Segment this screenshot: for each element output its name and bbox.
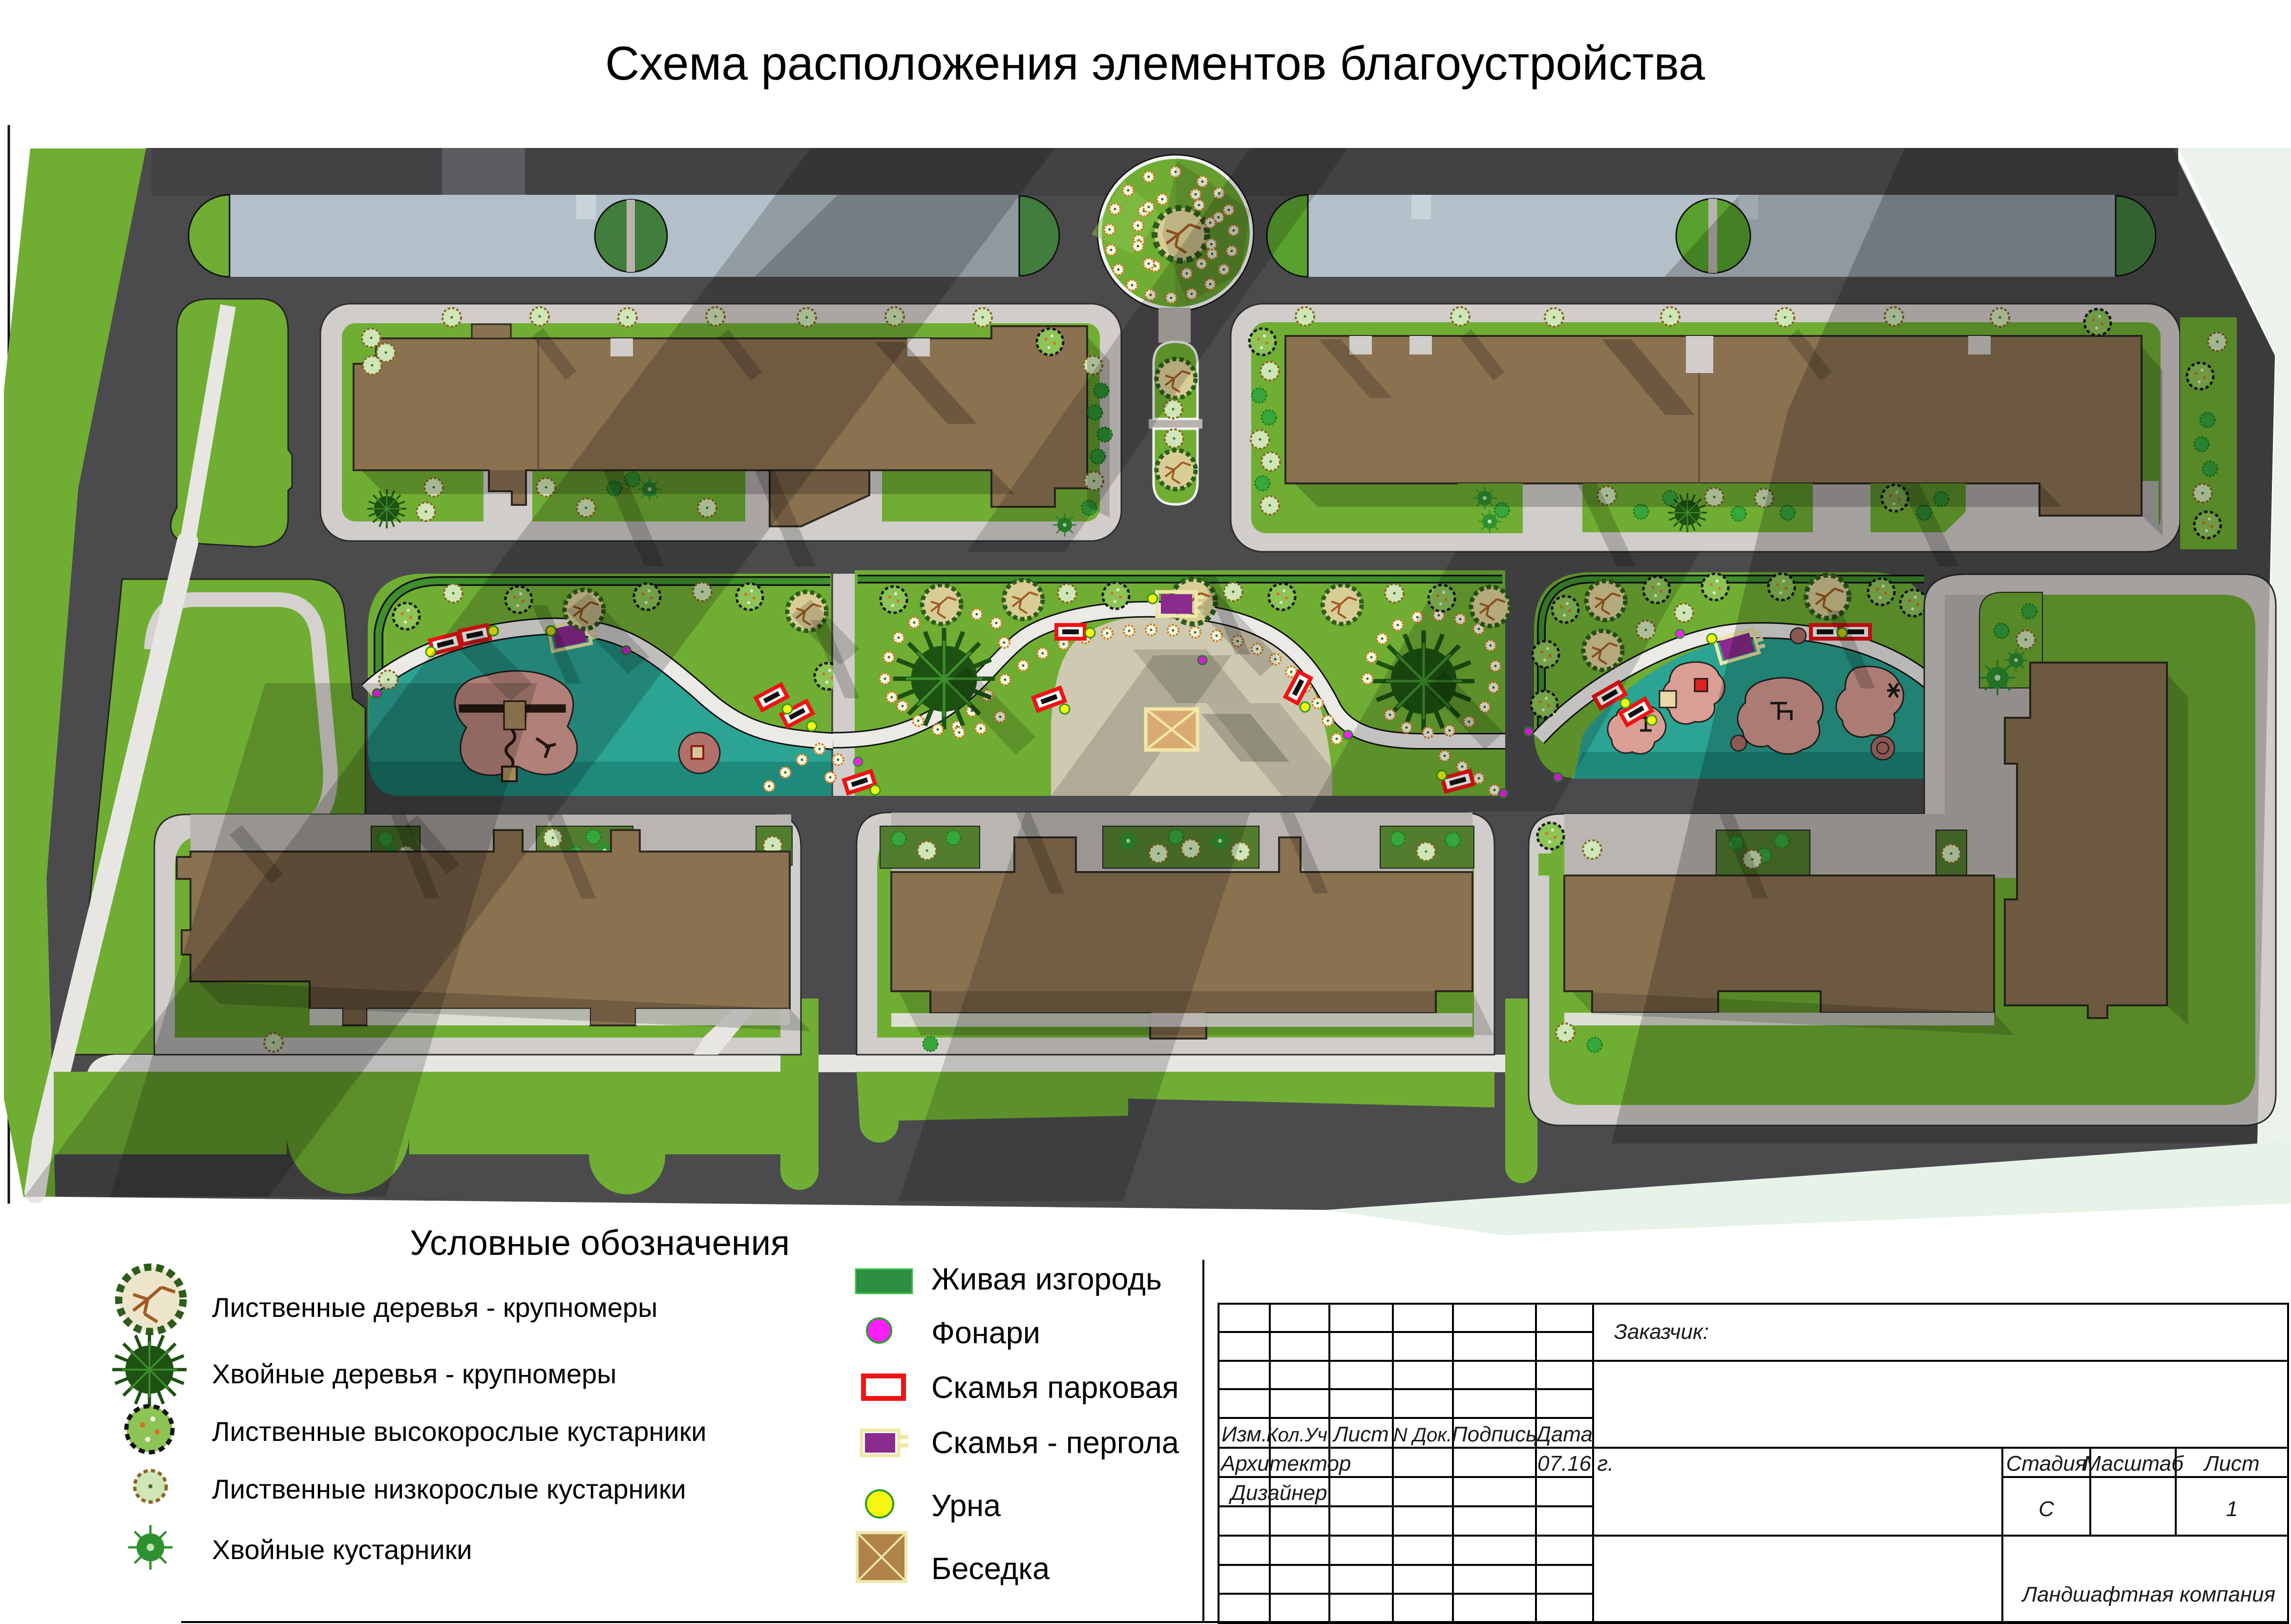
svg-text:Лиственные низкорослые кустарн: Лиственные низкорослые кустарники <box>212 1474 686 1504</box>
svg-text:Масштаб: Масштаб <box>2083 1452 2185 1476</box>
svg-text:07.16 г.: 07.16 г. <box>1537 1452 1614 1476</box>
svg-text:Ландшафтная компания: Ландшафтная компания <box>2021 1582 2275 1606</box>
svg-text:Живая изгородь: Живая изгородь <box>931 1262 1162 1296</box>
svg-text:Дата: Дата <box>1534 1422 1593 1446</box>
svg-text:Лист: Лист <box>2203 1452 2259 1476</box>
svg-text:Хвойные кустарники: Хвойные кустарники <box>212 1534 472 1565</box>
svg-text:Стадия: Стадия <box>2006 1452 2087 1476</box>
svg-text:1: 1 <box>2226 1497 2238 1521</box>
svg-text:N Док.: N Док. <box>1393 1424 1452 1446</box>
svg-text:Фонари: Фонари <box>931 1316 1040 1350</box>
svg-text:Архитектор: Архитектор <box>1219 1452 1351 1476</box>
svg-text:Хвойные деревья - крупномеры: Хвойные деревья - крупномеры <box>212 1358 616 1389</box>
svg-text:Лист: Лист <box>1332 1422 1388 1446</box>
svg-text:Урна: Урна <box>931 1489 1001 1523</box>
svg-text:Заказчик:: Заказчик: <box>1614 1320 1709 1344</box>
svg-text:С: С <box>2039 1497 2055 1521</box>
svg-text:Подпись: Подпись <box>1452 1422 1537 1446</box>
svg-text:Схема расположения элементов б: Схема расположения элементов благоустрой… <box>605 37 1705 90</box>
svg-text:Беседка: Беседка <box>931 1552 1050 1586</box>
svg-text:Изм.: Изм. <box>1221 1422 1267 1446</box>
svg-text:Лиственные деревья - крупномер: Лиственные деревья - крупномеры <box>212 1292 657 1323</box>
svg-text:Условные обозначения: Условные обозначения <box>410 1224 790 1263</box>
svg-text:Скамья парковая: Скамья парковая <box>931 1371 1179 1405</box>
svg-text:Скамья - пергола: Скамья - пергола <box>931 1426 1179 1460</box>
svg-text:Кол.Уч.: Кол.Уч. <box>1266 1424 1333 1446</box>
svg-text:Лиственные высокорослые кустар: Лиственные высокорослые кустарники <box>212 1416 707 1447</box>
svg-text:Дизайнер: Дизайнер <box>1228 1481 1327 1505</box>
